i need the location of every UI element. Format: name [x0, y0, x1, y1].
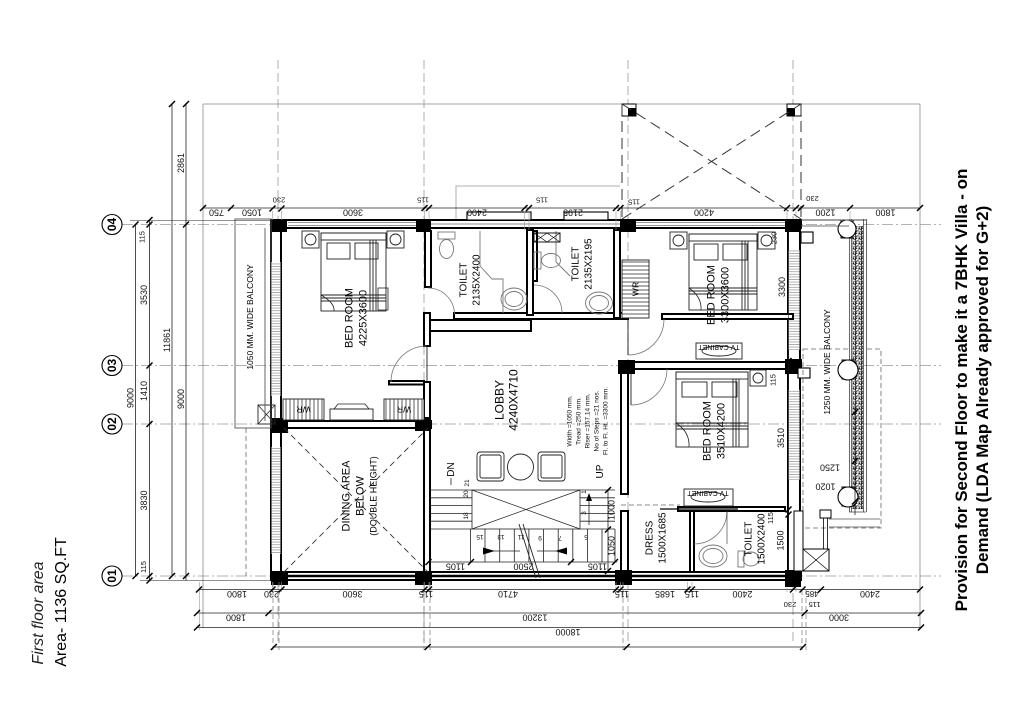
svg-text:DRESS: DRESS [645, 520, 656, 555]
svg-text:03: 03 [105, 359, 119, 373]
svg-text:WR: WR [397, 405, 411, 415]
svg-text:2400: 2400 [732, 589, 752, 599]
svg-text:1050 MM. WIDE BALCONY: 1050 MM. WIDE BALCONY [245, 264, 255, 370]
svg-text:1685: 1685 [655, 589, 675, 599]
svg-text:4710: 4710 [498, 589, 518, 599]
svg-text:1050: 1050 [242, 208, 262, 218]
svg-text:1200: 1200 [815, 208, 835, 218]
svg-text:2135X2195: 2135X2195 [584, 238, 595, 290]
svg-text:3530: 3530 [139, 285, 149, 305]
svg-text:1500: 1500 [776, 530, 786, 550]
svg-text:LOBBY: LOBBY [493, 380, 507, 420]
svg-text:2195: 2195 [563, 208, 583, 218]
svg-text:3600: 3600 [342, 589, 362, 599]
svg-text:11861: 11861 [162, 328, 172, 352]
svg-text:Demand (LDA Map Already approv: Demand (LDA Map Already approved for G+2… [973, 206, 992, 575]
svg-text:3830: 3830 [139, 490, 149, 510]
svg-text:Riser =157.14 mm.: Riser =157.14 mm. [584, 393, 591, 448]
svg-text:115: 115 [685, 589, 699, 599]
svg-text:11: 11 [517, 533, 524, 540]
svg-text:BED ROOM: BED ROOM [706, 265, 718, 325]
svg-text:2400: 2400 [860, 589, 880, 599]
svg-text:WR: WR [296, 405, 310, 415]
svg-text:TV CABINET: TV CABINET [698, 343, 740, 350]
svg-text:Width =1050 mm.: Width =1050 mm. [566, 395, 573, 446]
svg-text:BELOW: BELOW [355, 476, 367, 516]
svg-text:TOILET: TOILET [744, 522, 755, 557]
svg-text:115: 115 [809, 600, 821, 609]
svg-text:115: 115 [536, 196, 548, 205]
svg-text:2400: 2400 [467, 208, 487, 218]
svg-text:DINING AREA: DINING AREA [341, 460, 353, 532]
svg-text:7: 7 [558, 534, 562, 541]
svg-text:BED ROOM: BED ROOM [702, 401, 714, 461]
svg-text:5: 5 [584, 533, 588, 540]
svg-text:1500X2400: 1500X2400 [757, 513, 768, 565]
svg-text:3510X4200: 3510X4200 [716, 403, 728, 459]
svg-text:18: 18 [463, 512, 470, 520]
svg-text:1800: 1800 [875, 208, 895, 218]
svg-text:1500X1685: 1500X1685 [658, 512, 669, 564]
svg-text:02: 02 [105, 417, 119, 431]
svg-text:230: 230 [784, 600, 797, 609]
svg-text:01: 01 [105, 569, 119, 583]
svg-text:(DOUBLE HEIGHT): (DOUBLE HEIGHT) [369, 456, 379, 536]
svg-text:20: 20 [463, 490, 470, 498]
svg-text:115: 115 [417, 196, 429, 205]
svg-text:TOILET: TOILET [459, 263, 470, 298]
svg-text:1410: 1410 [139, 381, 149, 401]
svg-text:Area- 1136 SQ.FT: Area- 1136 SQ.FT [53, 537, 70, 667]
svg-text:1000: 1000 [607, 500, 617, 520]
svg-text:4240X4710: 4240X4710 [507, 369, 521, 431]
svg-text:2861: 2861 [176, 153, 186, 173]
svg-text:115: 115 [769, 374, 778, 386]
svg-text:1020: 1020 [815, 481, 835, 491]
svg-text:Provision for Second Floor to: Provision for Second Floor to make it a … [952, 169, 971, 612]
svg-text:1050: 1050 [607, 536, 617, 556]
svg-text:230: 230 [806, 194, 819, 203]
svg-text:750: 750 [209, 208, 224, 218]
svg-text:2135X2400: 2135X2400 [472, 254, 483, 306]
svg-text:13200: 13200 [522, 613, 547, 623]
svg-text:4200: 4200 [694, 208, 714, 218]
svg-text:9: 9 [538, 534, 542, 541]
svg-text:3000: 3000 [829, 613, 849, 623]
svg-text:230: 230 [264, 589, 279, 599]
svg-text:2500: 2500 [513, 562, 533, 572]
svg-text:04: 04 [105, 218, 119, 232]
svg-text:9000: 9000 [176, 389, 186, 409]
svg-text:115: 115 [628, 198, 640, 207]
svg-text:9000: 9000 [126, 388, 136, 408]
svg-text:1105: 1105 [446, 562, 465, 572]
svg-text:115: 115 [419, 589, 433, 599]
svg-text:485: 485 [805, 589, 819, 598]
svg-text:3: 3 [581, 511, 588, 515]
svg-text:1250: 1250 [820, 462, 840, 472]
svg-text:3510: 3510 [776, 428, 786, 448]
svg-text:115: 115 [139, 561, 148, 573]
svg-text:BED ROOM: BED ROOM [344, 288, 356, 348]
svg-text:3300X3600: 3300X3600 [720, 267, 732, 323]
svg-text:1105: 1105 [588, 562, 607, 572]
svg-text:WR: WR [631, 282, 641, 296]
svg-text:No of Steps =21 nos.: No of Steps =21 nos. [593, 390, 600, 451]
svg-text:3300: 3300 [777, 277, 787, 297]
svg-text:21: 21 [464, 479, 471, 487]
svg-text:18000: 18000 [555, 627, 580, 637]
svg-text:1: 1 [581, 490, 588, 494]
svg-text:TOILET: TOILET [571, 247, 582, 282]
svg-text:UP: UP [595, 464, 606, 478]
svg-text:4225X3600: 4225X3600 [358, 290, 370, 346]
svg-text:1800: 1800 [227, 589, 247, 599]
svg-text:230: 230 [273, 196, 286, 205]
svg-text:Tread =250 mm.: Tread =250 mm. [575, 397, 582, 445]
svg-text:115: 115 [615, 589, 629, 599]
svg-text:DN: DN [446, 462, 457, 476]
svg-text:1250 MM. WIDE BALCONY: 1250 MM. WIDE BALCONY [822, 309, 832, 415]
svg-text:TV CABINET: TV CABINET [687, 489, 729, 496]
svg-text:115: 115 [138, 231, 147, 243]
svg-text:15: 15 [476, 533, 484, 540]
svg-text:230: 230 [770, 232, 779, 245]
svg-text:Fl. to Fl. Ht. =3300 mm.: Fl. to Fl. Ht. =3300 mm. [602, 387, 609, 455]
svg-text:3600: 3600 [343, 208, 363, 218]
svg-text:First floor area: First floor area [30, 561, 47, 664]
svg-text:1800: 1800 [226, 613, 246, 623]
svg-text:13: 13 [497, 533, 505, 540]
